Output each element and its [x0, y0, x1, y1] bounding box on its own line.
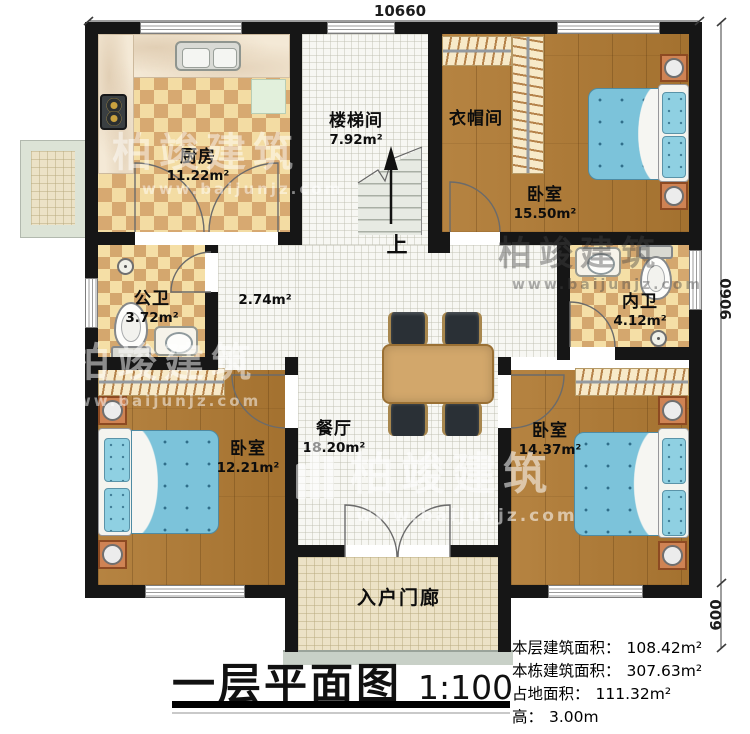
brand-logo-watermark: [26, 336, 60, 382]
room-area: 11.22m²: [146, 168, 250, 186]
nightstand: [98, 540, 127, 569]
nightstand: [658, 396, 687, 425]
cloakroom-rack: [512, 36, 544, 174]
kitchen-sink: [175, 41, 241, 71]
window: [85, 278, 98, 328]
wall-segment: [557, 347, 570, 360]
room-area: 4.12m²: [595, 313, 685, 331]
east-corridor-floor: [498, 245, 557, 357]
cloakroom-rack: [442, 36, 512, 66]
wall-segment: [205, 245, 218, 253]
room-name: 餐厅: [288, 418, 380, 440]
lamp-icon: [662, 400, 683, 421]
wall-column: [428, 232, 450, 253]
stairs-up-label: 上: [372, 232, 422, 259]
window: [327, 22, 395, 34]
room-label-bedroom-sw: 卧室 12.21m²: [198, 438, 298, 478]
pillow: [104, 488, 130, 532]
nightstand: [658, 541, 687, 570]
dimension-top: 10660: [330, 2, 470, 20]
pillow: [662, 136, 686, 178]
stove-icon: [100, 94, 127, 130]
wall-segment: [498, 598, 511, 652]
info-label: 本栋建筑面积：: [512, 660, 621, 683]
room-label-public-bath: 公卫 3.72m²: [108, 288, 196, 328]
window: [689, 250, 702, 310]
bath-sink: [575, 247, 621, 277]
room-label-cloakroom: 衣帽间: [436, 108, 516, 130]
window: [548, 585, 643, 598]
chair: [442, 402, 482, 436]
info-row: 高： 3.00m: [512, 706, 702, 729]
ceiling-lamp-icon: [650, 330, 667, 347]
wardrobe-rack: [575, 368, 689, 396]
room-label-bedroom-ne: 卧室 15.50m²: [495, 184, 595, 224]
info-row: 占地面积： 111.32m²: [512, 683, 702, 706]
room-area: 12.21m²: [198, 460, 298, 478]
room-label-ensuite-bath: 内卫 4.12m²: [595, 291, 685, 331]
room-name: 公卫: [108, 288, 196, 310]
wall-segment: [615, 347, 702, 360]
kitchen-board: [251, 79, 286, 114]
window: [140, 22, 242, 34]
dimension-right-porch: 600: [707, 585, 725, 645]
hallway-area-label: 2.74m²: [230, 292, 300, 310]
bed: [588, 88, 660, 180]
kitchen-sink-basin: [213, 48, 237, 68]
lamp-icon: [102, 400, 123, 421]
bath-sink-basin: [587, 253, 615, 275]
info-label: 高：: [512, 706, 543, 729]
room-name: 内卫: [595, 291, 685, 313]
wall-segment: [85, 357, 218, 370]
room-area: 18.20m²: [288, 440, 380, 458]
wall-segment: [428, 22, 442, 245]
stove-burner: [106, 111, 121, 126]
wall-segment: [85, 232, 135, 245]
info-row: 本栋建筑面积： 307.63m²: [512, 660, 702, 683]
wall-segment: [278, 232, 302, 245]
wall-segment: [285, 357, 298, 375]
pillow: [662, 92, 686, 134]
room-name: 卧室: [500, 420, 600, 442]
info-row: 本层建筑面积： 108.42m²: [512, 637, 702, 660]
room-name: 卧室: [198, 438, 298, 460]
dining-table: [382, 344, 494, 404]
wall-segment: [290, 22, 302, 245]
pillow: [662, 438, 686, 484]
dimension-right-main: 9060: [717, 269, 735, 329]
pillow: [662, 490, 686, 536]
wall-segment: [557, 245, 570, 360]
lamp-icon: [102, 544, 123, 565]
window: [557, 22, 660, 34]
side-platform-inner: [31, 151, 75, 225]
window: [145, 585, 245, 598]
wall-segment: [498, 357, 511, 375]
info-label: 本层建筑面积：: [512, 637, 621, 660]
room-label-bedroom-se: 卧室 14.37m²: [500, 420, 600, 460]
room-name: 楼梯间: [310, 110, 402, 132]
info-value: 111.32m²: [596, 683, 672, 706]
wall-segment: [285, 598, 298, 652]
bath-sink: [154, 326, 198, 356]
wall-segment: [285, 545, 345, 557]
room-area: 7.92m²: [310, 132, 402, 150]
pillow: [104, 438, 130, 482]
title-underline: [172, 701, 510, 708]
lamp-icon: [664, 58, 684, 78]
room-name: 厨房: [146, 146, 250, 168]
room-label-dining: 餐厅 18.20m²: [288, 418, 380, 458]
room-label-stairwell: 楼梯间 7.92m²: [310, 110, 402, 150]
room-area: 3.72m²: [108, 310, 196, 328]
room-name: 卧室: [495, 184, 595, 206]
info-label: 占地面积：: [512, 683, 590, 706]
chair: [442, 312, 482, 346]
kitchen-sink-basin: [182, 48, 210, 68]
ceiling-lamp-icon: [117, 258, 134, 275]
wall-segment: [689, 22, 702, 598]
wardrobe-rack: [98, 368, 225, 396]
nightstand: [98, 396, 127, 425]
lamp-icon: [662, 545, 683, 566]
nightstand: [660, 54, 688, 82]
info-value: 307.63m²: [627, 660, 703, 683]
room-area: 14.37m²: [500, 442, 600, 460]
floor-plan-canvas: 厨房 11.22m² 楼梯间 7.92m² 上 衣帽间 卧室 15.50m² 公…: [0, 0, 750, 734]
chair: [388, 402, 428, 436]
building-info: 本层建筑面积： 108.42m² 本栋建筑面积： 307.63m² 占地面积： …: [512, 637, 702, 729]
room-name: 衣帽间: [436, 108, 516, 130]
info-value: 108.42m²: [627, 637, 703, 660]
bath-sink-basin: [165, 332, 193, 354]
wall-segment: [450, 545, 511, 557]
room-label-kitchen: 厨房 11.22m²: [146, 146, 250, 186]
nightstand: [660, 182, 688, 210]
info-value: 3.00m: [549, 706, 599, 729]
room-area: 15.50m²: [495, 206, 595, 224]
lamp-icon: [664, 186, 684, 206]
chair: [388, 312, 428, 346]
wall-segment: [500, 232, 702, 245]
title-underline-thin: [172, 712, 510, 714]
room-label-porch: 入户门廊: [324, 586, 474, 611]
